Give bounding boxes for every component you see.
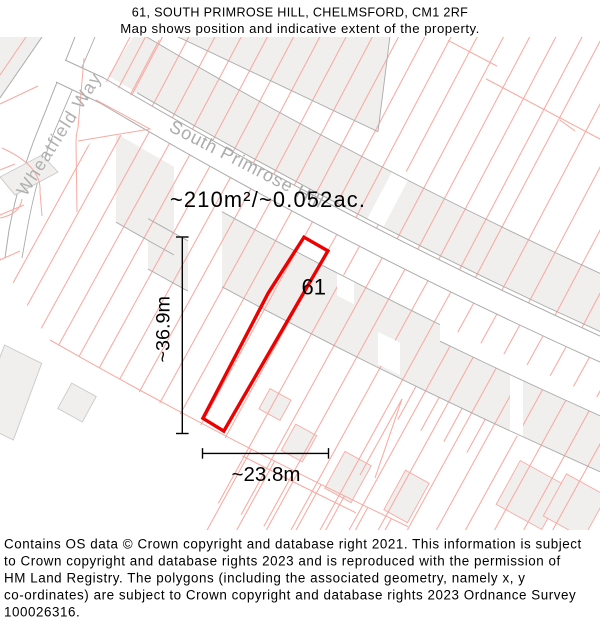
svg-text:100026316.: 100026316. [4, 605, 80, 620]
svg-text:61: 61 [302, 275, 326, 300]
svg-text:~210m²/~0.052ac.: ~210m²/~0.052ac. [170, 187, 366, 212]
svg-text:~36.9m: ~36.9m [153, 296, 175, 363]
svg-text:HM Land Registry. The polygons: HM Land Registry. The polygons (includin… [4, 571, 525, 586]
svg-text:~23.8m: ~23.8m [232, 463, 301, 486]
svg-text:Map shows position and indicat: Map shows position and indicative extent… [120, 21, 480, 36]
svg-text:to Crown copyright and databas: to Crown copyright and database rights 2… [4, 554, 561, 569]
svg-text:Contains OS data © Crown copyr: Contains OS data © Crown copyright and d… [4, 537, 582, 552]
svg-text:61, SOUTH PRIMROSE HILL, CHELM: 61, SOUTH PRIMROSE HILL, CHELMSFORD, CM1… [132, 6, 468, 20]
svg-text:co-ordinates) are subject to C: co-ordinates) are subject to Crown copyr… [4, 588, 576, 603]
